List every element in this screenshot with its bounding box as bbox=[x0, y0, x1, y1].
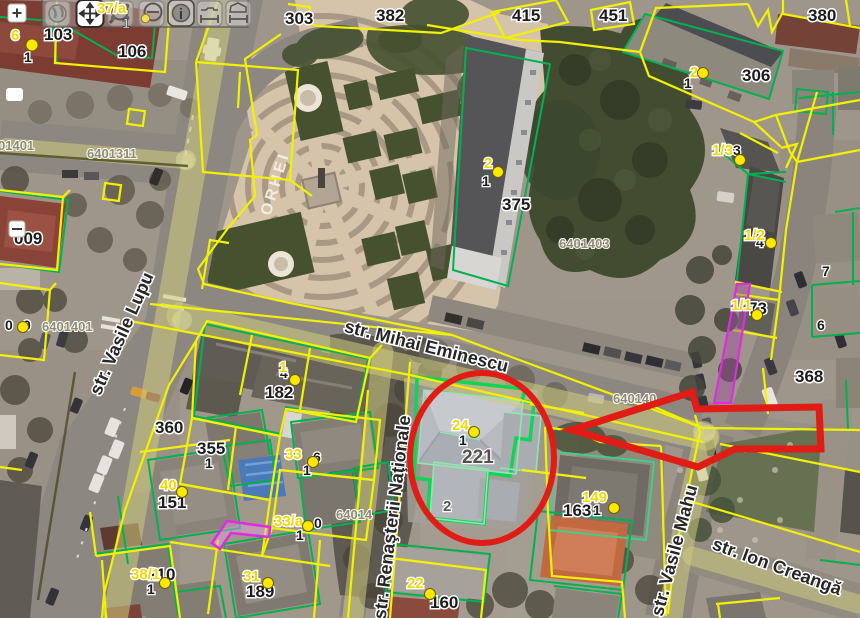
svg-text:103: 103 bbox=[44, 25, 72, 44]
svg-text:0: 0 bbox=[314, 515, 322, 531]
svg-text:1/2: 1/2 bbox=[744, 227, 765, 244]
svg-text:375: 375 bbox=[502, 195, 530, 214]
svg-text:106: 106 bbox=[118, 42, 146, 61]
svg-text:22: 22 bbox=[407, 575, 424, 592]
svg-text:1: 1 bbox=[122, 15, 130, 31]
svg-text:382: 382 bbox=[376, 6, 404, 25]
svg-text:31: 31 bbox=[243, 568, 260, 585]
svg-text:380: 380 bbox=[808, 6, 836, 25]
svg-text:303: 303 bbox=[285, 9, 313, 28]
svg-text:2: 2 bbox=[484, 155, 492, 172]
svg-text:149: 149 bbox=[582, 489, 607, 506]
svg-text:221: 221 bbox=[462, 447, 494, 468]
svg-text:01401: 01401 bbox=[0, 138, 34, 153]
svg-text:24: 24 bbox=[452, 417, 469, 434]
svg-text:1: 1 bbox=[147, 581, 155, 597]
svg-text:i: i bbox=[179, 6, 183, 23]
svg-text:1: 1 bbox=[205, 455, 213, 471]
svg-text:1/3: 1/3 bbox=[712, 142, 733, 159]
svg-text:38/1: 38/1 bbox=[131, 566, 160, 583]
svg-text:1: 1 bbox=[482, 173, 490, 189]
svg-text:1/1: 1/1 bbox=[731, 297, 752, 314]
svg-text:6401401: 6401401 bbox=[42, 319, 93, 334]
svg-text:33: 33 bbox=[285, 446, 302, 463]
svg-text:1: 1 bbox=[459, 432, 467, 448]
svg-text:6401403: 6401403 bbox=[559, 236, 610, 251]
svg-text:451: 451 bbox=[599, 6, 627, 25]
svg-text:0: 0 bbox=[5, 317, 13, 333]
svg-text:1: 1 bbox=[279, 359, 287, 376]
svg-text:360: 360 bbox=[155, 418, 183, 437]
svg-text:182: 182 bbox=[265, 383, 293, 402]
svg-text:1: 1 bbox=[24, 49, 32, 65]
svg-text:6: 6 bbox=[817, 317, 825, 333]
svg-text:6401311: 6401311 bbox=[87, 146, 137, 161]
svg-text:64014: 64014 bbox=[336, 507, 373, 522]
svg-text:6: 6 bbox=[11, 27, 19, 44]
svg-text:368: 368 bbox=[795, 367, 823, 386]
svg-text:33/a: 33/a bbox=[274, 513, 304, 530]
svg-text:415: 415 bbox=[512, 6, 540, 25]
svg-text:2: 2 bbox=[443, 498, 451, 515]
svg-text:306: 306 bbox=[742, 66, 770, 85]
svg-text:40: 40 bbox=[160, 477, 177, 494]
svg-text:7: 7 bbox=[822, 263, 830, 279]
